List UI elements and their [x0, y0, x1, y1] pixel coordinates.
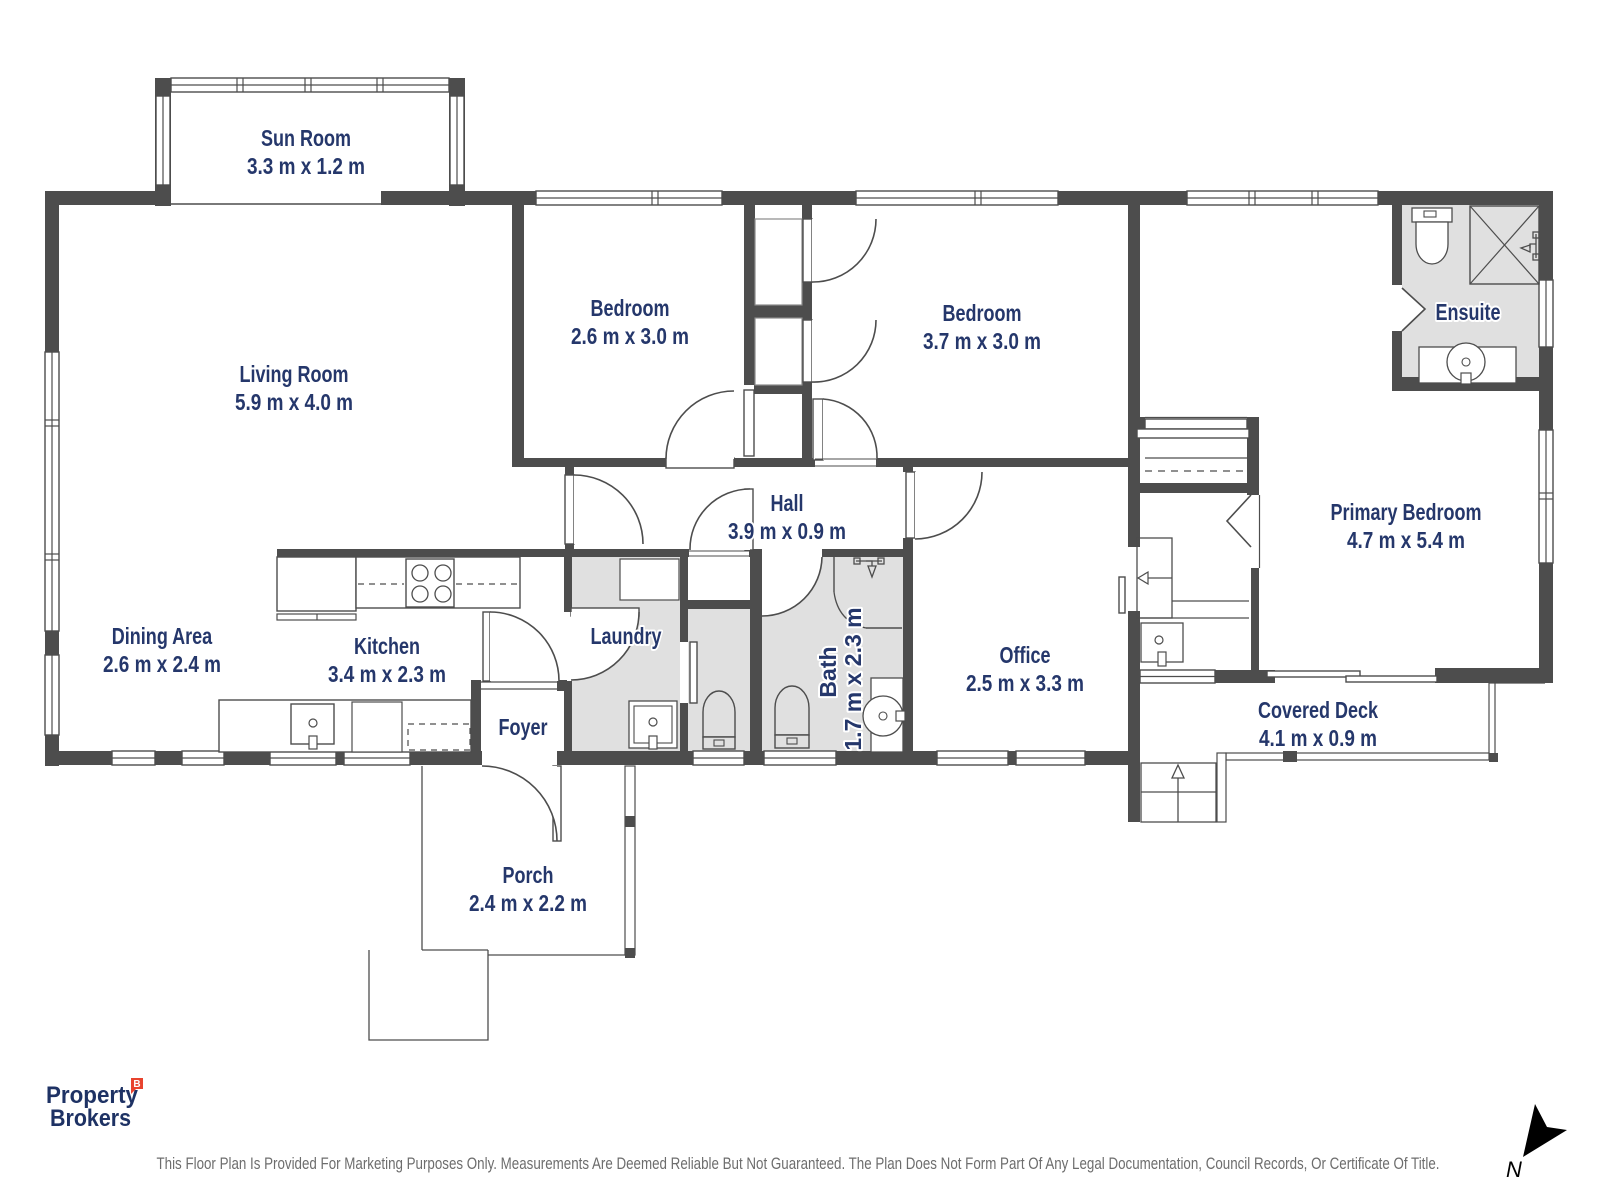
svg-text:Brokers: Brokers	[50, 1105, 131, 1132]
svg-text:N: N	[1506, 1157, 1522, 1182]
svg-text:4.1 m x 0.9 m: 4.1 m x 0.9 m	[1259, 725, 1377, 751]
svg-text:2.5 m x 3.3 m: 2.5 m x 3.3 m	[966, 670, 1084, 696]
svg-text:1.7 m x 2.3 m: 1.7 m x 2.3 m	[840, 607, 866, 750]
svg-text:3.3 m x 1.2 m: 3.3 m x 1.2 m	[247, 153, 365, 179]
svg-text:4.7 m x 5.4 m: 4.7 m x 5.4 m	[1347, 527, 1465, 553]
svg-text:Porch: Porch	[503, 862, 554, 888]
svg-text:3.9 m x 0.9 m: 3.9 m x 0.9 m	[728, 518, 846, 544]
svg-text:Laundry: Laundry	[591, 623, 662, 649]
svg-text:3.4 m x 2.3 m: 3.4 m x 2.3 m	[328, 661, 446, 687]
svg-text:Living Room: Living Room	[240, 361, 349, 387]
svg-text:Bath: Bath	[815, 646, 841, 697]
svg-text:Primary Bedroom: Primary Bedroom	[1330, 499, 1481, 525]
svg-text:Dining Area: Dining Area	[112, 623, 213, 649]
svg-text:Bedroom: Bedroom	[943, 300, 1022, 326]
svg-text:Hall: Hall	[771, 490, 804, 516]
svg-text:Covered Deck: Covered Deck	[1258, 697, 1378, 723]
svg-text:Bedroom: Bedroom	[591, 295, 670, 321]
svg-text:2.6 m x 3.0 m: 2.6 m x 3.0 m	[571, 323, 689, 349]
svg-text:5.9 m x 4.0 m: 5.9 m x 4.0 m	[235, 389, 353, 415]
svg-text:3.7 m x 3.0 m: 3.7 m x 3.0 m	[923, 328, 1041, 354]
svg-text:Office: Office	[1000, 642, 1051, 668]
svg-text:This Floor Plan Is Provided Fo: This Floor Plan Is Provided For Marketin…	[157, 1154, 1440, 1173]
svg-text:2.4 m x 2.2 m: 2.4 m x 2.2 m	[469, 890, 587, 916]
svg-text:Ensuite: Ensuite	[1436, 299, 1501, 325]
svg-text:B: B	[133, 1079, 140, 1090]
svg-text:Sun Room: Sun Room	[261, 125, 351, 151]
svg-text:2.6 m x 2.4 m: 2.6 m x 2.4 m	[103, 651, 221, 677]
svg-text:Foyer: Foyer	[498, 714, 547, 740]
svg-text:Kitchen: Kitchen	[354, 633, 420, 659]
